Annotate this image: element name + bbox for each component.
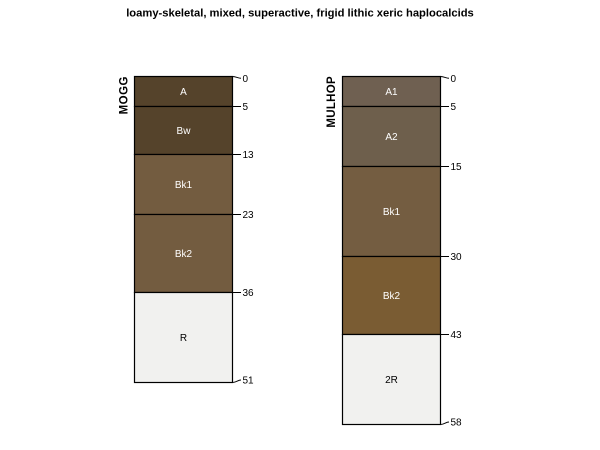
svg-text:Bk1: Bk1 [383,207,401,218]
svg-text:23: 23 [243,210,255,221]
svg-text:A2: A2 [385,132,398,143]
svg-text:Bw: Bw [177,126,192,137]
svg-text:0: 0 [451,74,457,85]
svg-text:loamy-skeletal, mixed, superac: loamy-skeletal, mixed, superactive, frig… [126,7,474,19]
svg-text:R: R [180,333,187,344]
svg-text:5: 5 [243,102,249,113]
svg-text:30: 30 [451,252,463,263]
svg-text:0: 0 [243,74,249,85]
svg-text:15: 15 [451,162,463,173]
svg-text:MULHOP: MULHOP [326,76,338,128]
svg-text:36: 36 [243,288,255,299]
svg-text:Bk2: Bk2 [383,291,401,302]
svg-text:43: 43 [451,330,463,341]
svg-text:A: A [180,87,187,98]
svg-text:Bk1: Bk1 [175,180,193,191]
svg-text:58: 58 [451,418,463,429]
svg-text:13: 13 [243,150,255,161]
svg-text:Bk2: Bk2 [175,249,193,260]
svg-text:2R: 2R [385,375,398,386]
svg-text:MOGG: MOGG [118,76,130,114]
svg-text:5: 5 [451,102,457,113]
svg-text:51: 51 [243,376,255,387]
svg-text:A1: A1 [385,87,398,98]
